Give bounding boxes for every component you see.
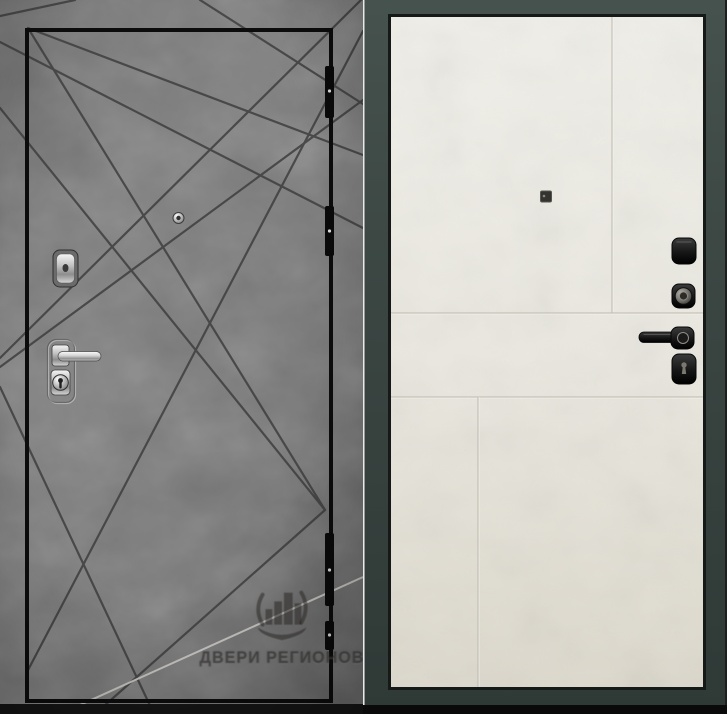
door-product-image: ДВЕРИ РЕГИОНОВ xyxy=(0,0,727,714)
peephole-icon xyxy=(541,191,552,202)
door-exterior-graphic xyxy=(0,0,363,714)
door-exterior-photo: ДВЕРИ РЕГИОНОВ xyxy=(0,0,363,714)
bottom-shadow xyxy=(363,705,727,714)
door-interior-graphic xyxy=(363,0,727,714)
latch-cover-icon xyxy=(672,238,696,264)
door-interior-photo: ДВЕРИ РЕГИОНОВ xyxy=(363,0,727,714)
photo-divider-sliver xyxy=(363,0,365,714)
thumbturn-knob-icon xyxy=(672,284,695,308)
keyhole-icon xyxy=(672,354,696,384)
